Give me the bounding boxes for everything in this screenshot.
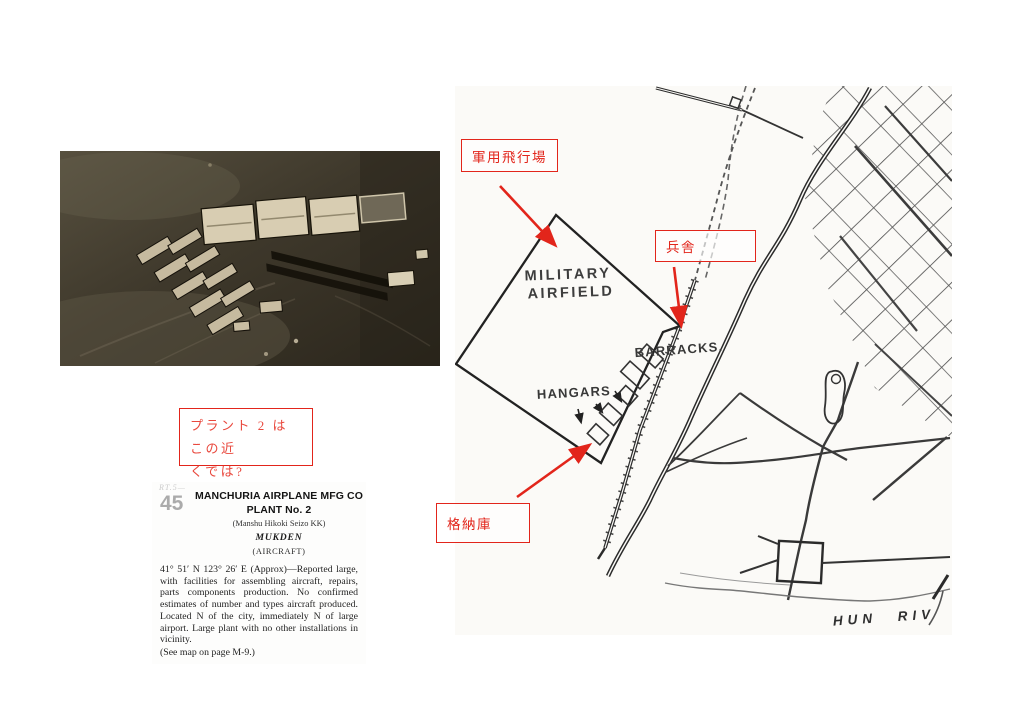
aerial-photo (60, 151, 440, 366)
clipping-ref-faint: RT.5— (159, 483, 186, 492)
aerial-photo-canvas (60, 151, 440, 366)
clipping-item-number: 45 (160, 492, 183, 516)
clipping-category: (AIRCRAFT) (194, 547, 364, 556)
annotation-airfield-label: 軍用飛行場 (472, 146, 547, 166)
annotation-hangar-label: 格納庫 (447, 513, 492, 533)
map-label-airfield: AIRFIELD (527, 283, 614, 302)
annotation-box-hangar: 格納庫 (436, 503, 530, 543)
annotation-note-plant2: プラント 2 はこの近 くでは? (179, 408, 313, 466)
map-label-military: MILITARY (524, 265, 611, 284)
clipping-title-line1: MANCHURIA AIRPLANE MFG CO (194, 490, 364, 502)
note-line-1: プラント 2 はこの近 (190, 414, 302, 460)
clipping-title-line2: PLANT No. 2 (194, 504, 364, 516)
clipping-location: MUKDEN (194, 532, 364, 543)
intel-clipping: RT.5— 45 MANCHURIA AIRPLANE MFG CO PLANT… (152, 482, 366, 664)
annotation-barracks-label: 兵舎 (666, 236, 696, 256)
annotation-box-airfield: 軍用飛行場 (461, 139, 558, 172)
clipping-subtitle: (Manshu Hikoki Seizo KK) (194, 519, 364, 528)
clipping-body-text: 41° 51′ N 123° 26′ E (Approx)—Reported l… (160, 564, 358, 646)
annotation-box-barracks: 兵舎 (655, 230, 756, 262)
note-line-2: くでは? (190, 460, 302, 483)
clipping-footnote: (See map on page M-9.) (160, 647, 366, 658)
